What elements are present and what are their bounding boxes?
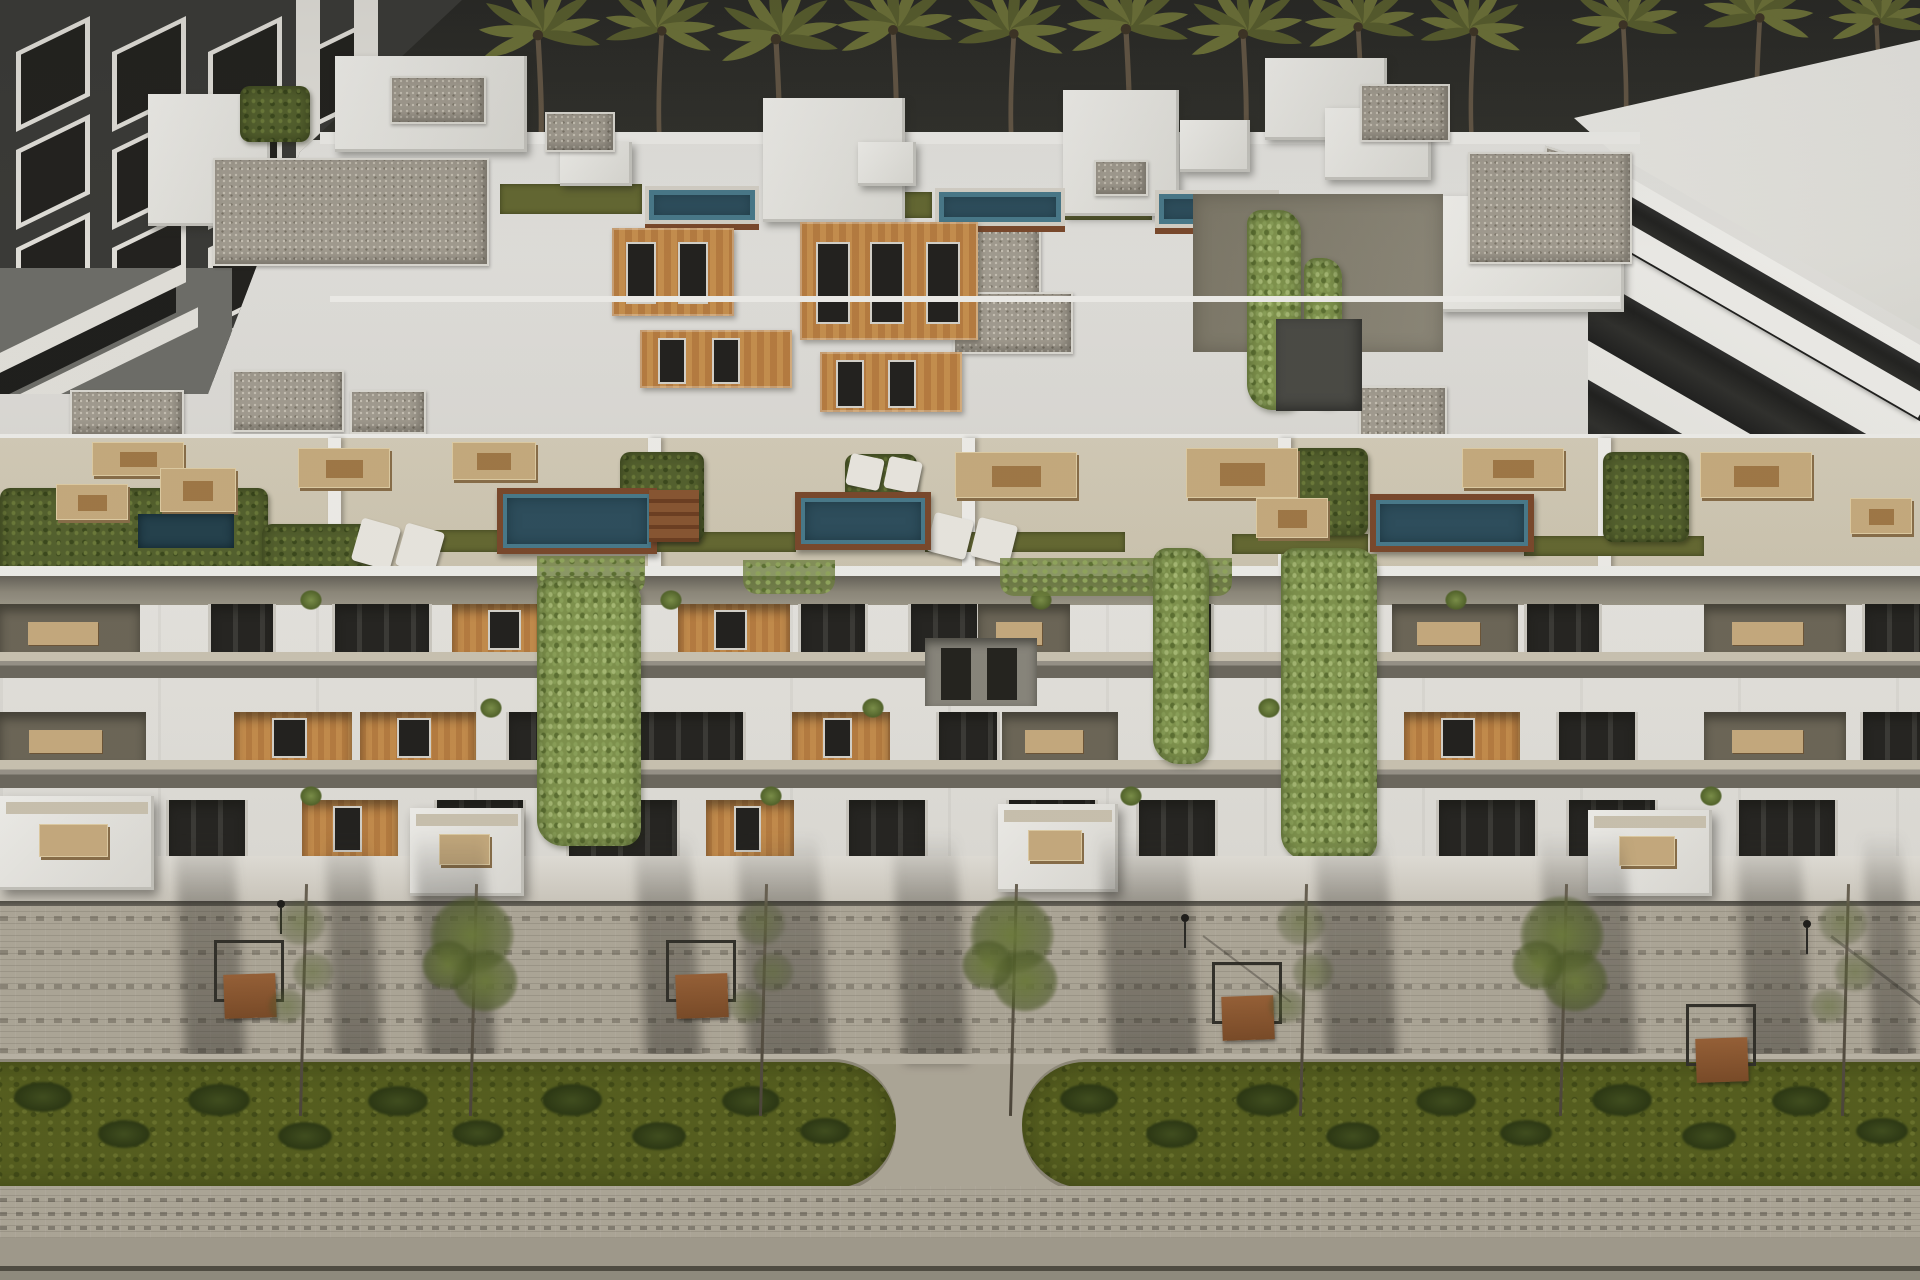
- street-tree-foliage: [736, 900, 786, 946]
- entrance-recess: [925, 638, 1037, 706]
- balcony-window: [272, 718, 307, 758]
- balcony-window: [823, 718, 852, 758]
- balcony-window: [488, 610, 521, 650]
- tree-shadow: [1099, 832, 1199, 1064]
- balcony-wood-panel: [1404, 712, 1520, 762]
- balcony-interior: [1002, 712, 1118, 762]
- terrace-table: [1278, 510, 1307, 528]
- gravel-roof-patch: [213, 158, 489, 266]
- terrace-furniture-set: [1186, 448, 1298, 498]
- terrace-box-furniture: [1619, 836, 1675, 866]
- terrace-furniture-set: [160, 468, 236, 512]
- balcony-wood-panel: [234, 712, 352, 762]
- gravel-roof-patch: [350, 390, 426, 434]
- balcony-glazing: [1436, 800, 1538, 856]
- balcony-interior: [1392, 604, 1518, 654]
- median-shrub: [1592, 1084, 1652, 1116]
- walkway-paver-row: [0, 1198, 1920, 1202]
- potted-plant: [1258, 698, 1280, 718]
- penthouse-volume: [1180, 120, 1250, 172]
- potted-plant: [1445, 590, 1467, 610]
- median-shrub: [98, 1120, 150, 1148]
- penthouse-wood-wall: [820, 352, 962, 412]
- street-tree-foliage: [1292, 952, 1334, 992]
- balcony-furniture: [1732, 622, 1803, 645]
- climbing-ivy-column: [1281, 548, 1377, 860]
- terrace-table: [183, 481, 213, 501]
- roof-lawn-strip: [500, 184, 642, 214]
- potted-plant: [1120, 786, 1142, 806]
- balcony-glazing: [1862, 604, 1920, 654]
- walkway-paver-row: [0, 1212, 1920, 1216]
- pool-wood-steps: [649, 490, 699, 542]
- balcony-furniture: [1025, 730, 1083, 753]
- terrace-front-parapet: [0, 566, 1920, 576]
- median-shrub: [1416, 1086, 1476, 1116]
- terrace-table: [78, 495, 107, 511]
- terrace-table: [120, 452, 157, 467]
- street-tree-foliage: [1834, 952, 1876, 992]
- lamp-head: [1803, 920, 1811, 928]
- median-shrub: [1682, 1122, 1736, 1150]
- tree-shadow: [892, 832, 968, 1064]
- street-tree-foliage: [1268, 988, 1306, 1024]
- terrace-table: [1220, 463, 1265, 486]
- median-shrub: [800, 1118, 850, 1144]
- wooden-bench: [1695, 1037, 1749, 1083]
- street-tree-foliage: [1818, 900, 1868, 946]
- potted-plant: [480, 698, 502, 718]
- gravel-roof-patch: [1468, 152, 1632, 264]
- terrace-furniture-set: [1462, 448, 1564, 488]
- lamp-post: [1806, 928, 1808, 954]
- median-shrub: [1856, 1118, 1908, 1144]
- lamp-head: [1181, 914, 1189, 922]
- terrace-plunge-pool: [1370, 494, 1534, 552]
- roof-slab-fascia: [0, 576, 1920, 605]
- potted-plant: [760, 786, 782, 806]
- balcony-glazing: [798, 604, 868, 654]
- street-tree-foliage: [422, 940, 474, 990]
- balcony-interior: [0, 604, 140, 654]
- terrace-table: [1493, 460, 1534, 478]
- balcony-slab-band: [0, 760, 1920, 788]
- terrace-furniture-set: [1850, 498, 1912, 534]
- balcony-window: [714, 610, 747, 650]
- penthouse-window: [678, 242, 708, 304]
- penthouse-window: [658, 338, 686, 384]
- balcony-glazing: [1556, 712, 1638, 762]
- sun-lounger: [883, 456, 923, 494]
- terrace-furniture-set: [1700, 452, 1812, 498]
- gravel-roof-patch: [1094, 160, 1148, 196]
- terrace-furniture-set: [56, 484, 128, 520]
- street-tree-foliage: [752, 952, 794, 992]
- balcony-glazing: [1524, 604, 1602, 654]
- terrace-box-top: [1004, 810, 1112, 822]
- entrance-door: [987, 648, 1017, 700]
- potted-plant: [862, 698, 884, 718]
- street-tree-foliage: [1512, 940, 1564, 990]
- terrace-table: [1869, 509, 1894, 525]
- median-shrub: [1326, 1122, 1380, 1150]
- terrace-pool-shaded: [138, 514, 234, 548]
- rooftop-pool-back: [935, 188, 1065, 226]
- median-shrub: [278, 1122, 332, 1150]
- penthouse-window: [870, 242, 904, 324]
- penthouse-window: [926, 242, 960, 324]
- roadway-band: [0, 1238, 1920, 1268]
- terrace-table: [477, 453, 511, 470]
- potted-plant: [660, 590, 682, 610]
- balcony-wood-panel: [678, 604, 790, 654]
- penthouse-window: [888, 360, 916, 408]
- terrace-plunge-pool: [795, 492, 931, 550]
- terrace-box-top: [6, 802, 148, 814]
- roadway-surface: [0, 1271, 1920, 1280]
- median-shrub: [1146, 1120, 1198, 1148]
- potted-plant: [1700, 786, 1722, 806]
- median-shrub: [722, 1086, 780, 1116]
- penthouse-wood-wall: [612, 228, 734, 316]
- median-shrub: [1772, 1086, 1830, 1116]
- dark-building-window: [16, 114, 90, 230]
- balcony-wood-panel: [360, 712, 476, 762]
- terrace-box-top: [1594, 816, 1706, 828]
- walkway-paver-row: [0, 1226, 1920, 1230]
- architectural-render-scene: [0, 0, 1920, 1280]
- potted-plant: [300, 590, 322, 610]
- entrance-door: [941, 648, 971, 700]
- median-shrub: [542, 1084, 602, 1116]
- terrace-box-furniture: [1028, 830, 1082, 861]
- balcony-glazing: [624, 712, 746, 762]
- lamp-post: [1184, 922, 1186, 948]
- median-shrub: [1236, 1084, 1298, 1116]
- dark-building-window: [16, 16, 90, 132]
- balcony-glazing: [936, 712, 1000, 762]
- wooden-bench: [675, 973, 729, 1019]
- tree-shadow: [736, 832, 830, 1064]
- penthouse-window: [712, 338, 740, 384]
- roof-slate-volume: [1276, 319, 1362, 411]
- terrace-hedge: [240, 86, 310, 142]
- terrace-furniture-set: [298, 448, 390, 488]
- balcony-furniture: [29, 730, 102, 753]
- balcony-furniture: [28, 622, 98, 645]
- penthouse-wood-wall: [640, 330, 792, 388]
- hanging-vines: [743, 560, 835, 594]
- roof-slab-line: [330, 296, 1620, 302]
- balcony-interior: [0, 712, 146, 762]
- terrace-plunge-pool: [497, 488, 657, 554]
- terrace-box-furniture: [39, 824, 108, 857]
- gravel-roof-patch: [1360, 84, 1450, 142]
- street-tree-foliage: [292, 952, 334, 992]
- balcony-furniture: [1417, 622, 1480, 645]
- penthouse-volume: [858, 142, 916, 186]
- street-tree-foliage: [276, 900, 326, 946]
- climbing-ivy-column: [1153, 548, 1209, 764]
- wooden-bench: [1221, 995, 1275, 1041]
- balcony-interior: [1704, 604, 1846, 654]
- gravel-roof-patch: [545, 112, 615, 152]
- balcony-wood-panel: [792, 712, 890, 762]
- sun-lounger: [845, 453, 885, 491]
- terrace-table: [1734, 466, 1779, 487]
- terrace-table: [992, 466, 1041, 487]
- median-shrub: [14, 1082, 72, 1112]
- balcony-glazing: [1860, 712, 1920, 762]
- street-tree-foliage: [1810, 988, 1848, 1024]
- penthouse-wood-wall: [800, 222, 978, 340]
- tree-shadow: [1314, 832, 1398, 1064]
- street-tree-foliage: [1276, 900, 1326, 946]
- terrace-furniture-set: [1256, 498, 1328, 538]
- street-tree-foliage: [728, 988, 766, 1024]
- potted-plant: [300, 786, 322, 806]
- terrace-furniture-set: [452, 442, 536, 480]
- gravel-roof-patch: [232, 370, 344, 432]
- terrace-box-top: [416, 814, 518, 826]
- street-tree-foliage: [268, 988, 306, 1024]
- terrace-furniture-set: [955, 452, 1077, 498]
- gravel-roof-patch: [390, 76, 486, 124]
- median-shrub: [452, 1120, 504, 1146]
- balcony-window: [397, 718, 431, 758]
- ground-floor-terrace-box: [0, 796, 154, 890]
- median-shrub: [632, 1122, 686, 1150]
- median-shrub: [368, 1086, 428, 1116]
- rooftop-pool-back: [645, 186, 759, 224]
- balcony-glazing: [332, 604, 432, 654]
- median-shrub: [1060, 1084, 1118, 1114]
- street-tree-foliage: [962, 940, 1014, 990]
- penthouse-window: [836, 360, 864, 408]
- median-shrub: [1500, 1120, 1552, 1146]
- terrace-hedge: [1603, 452, 1689, 542]
- balcony-interior: [1704, 712, 1846, 762]
- penthouse-window: [816, 242, 850, 324]
- median-shrub: [188, 1084, 250, 1116]
- terrace-table: [326, 460, 363, 478]
- balcony-furniture: [1732, 730, 1803, 753]
- balcony-glazing: [208, 604, 276, 654]
- climbing-ivy-column: [537, 578, 641, 846]
- penthouse-window: [626, 242, 656, 304]
- balcony-window: [1441, 718, 1475, 758]
- gravel-roof-patch: [70, 390, 184, 436]
